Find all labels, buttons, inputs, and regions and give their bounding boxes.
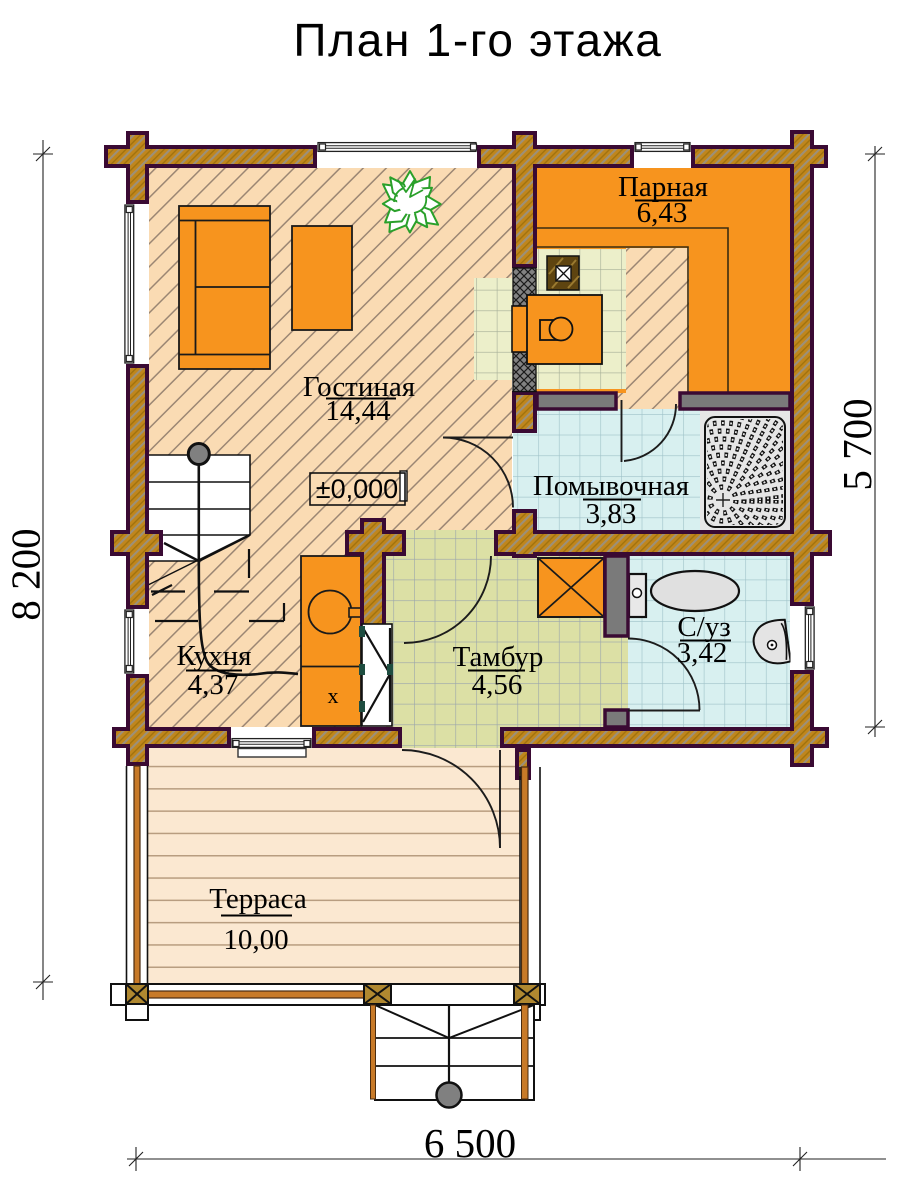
svg-text:3,42: 3,42 bbox=[677, 637, 728, 669]
svg-text:3,83: 3,83 bbox=[586, 498, 637, 530]
svg-text:10,00: 10,00 bbox=[223, 924, 288, 956]
svg-text:4,37: 4,37 bbox=[188, 669, 239, 701]
svg-text:±0,000: ±0,000 bbox=[316, 474, 398, 504]
svg-text:5 700: 5 700 bbox=[834, 398, 880, 490]
svg-text:x: x bbox=[328, 683, 339, 708]
svg-text:8 200: 8 200 bbox=[3, 528, 49, 620]
svg-text:14,44: 14,44 bbox=[325, 395, 391, 427]
svg-text:Кухня: Кухня bbox=[176, 640, 251, 672]
svg-text:4,56: 4,56 bbox=[472, 669, 523, 701]
svg-text:Терраса: Терраса bbox=[209, 883, 307, 915]
svg-text:6,43: 6,43 bbox=[637, 197, 688, 229]
svg-text:План 1-го этажа: План 1-го этажа bbox=[293, 14, 662, 66]
svg-text:6 500: 6 500 bbox=[424, 1120, 516, 1166]
